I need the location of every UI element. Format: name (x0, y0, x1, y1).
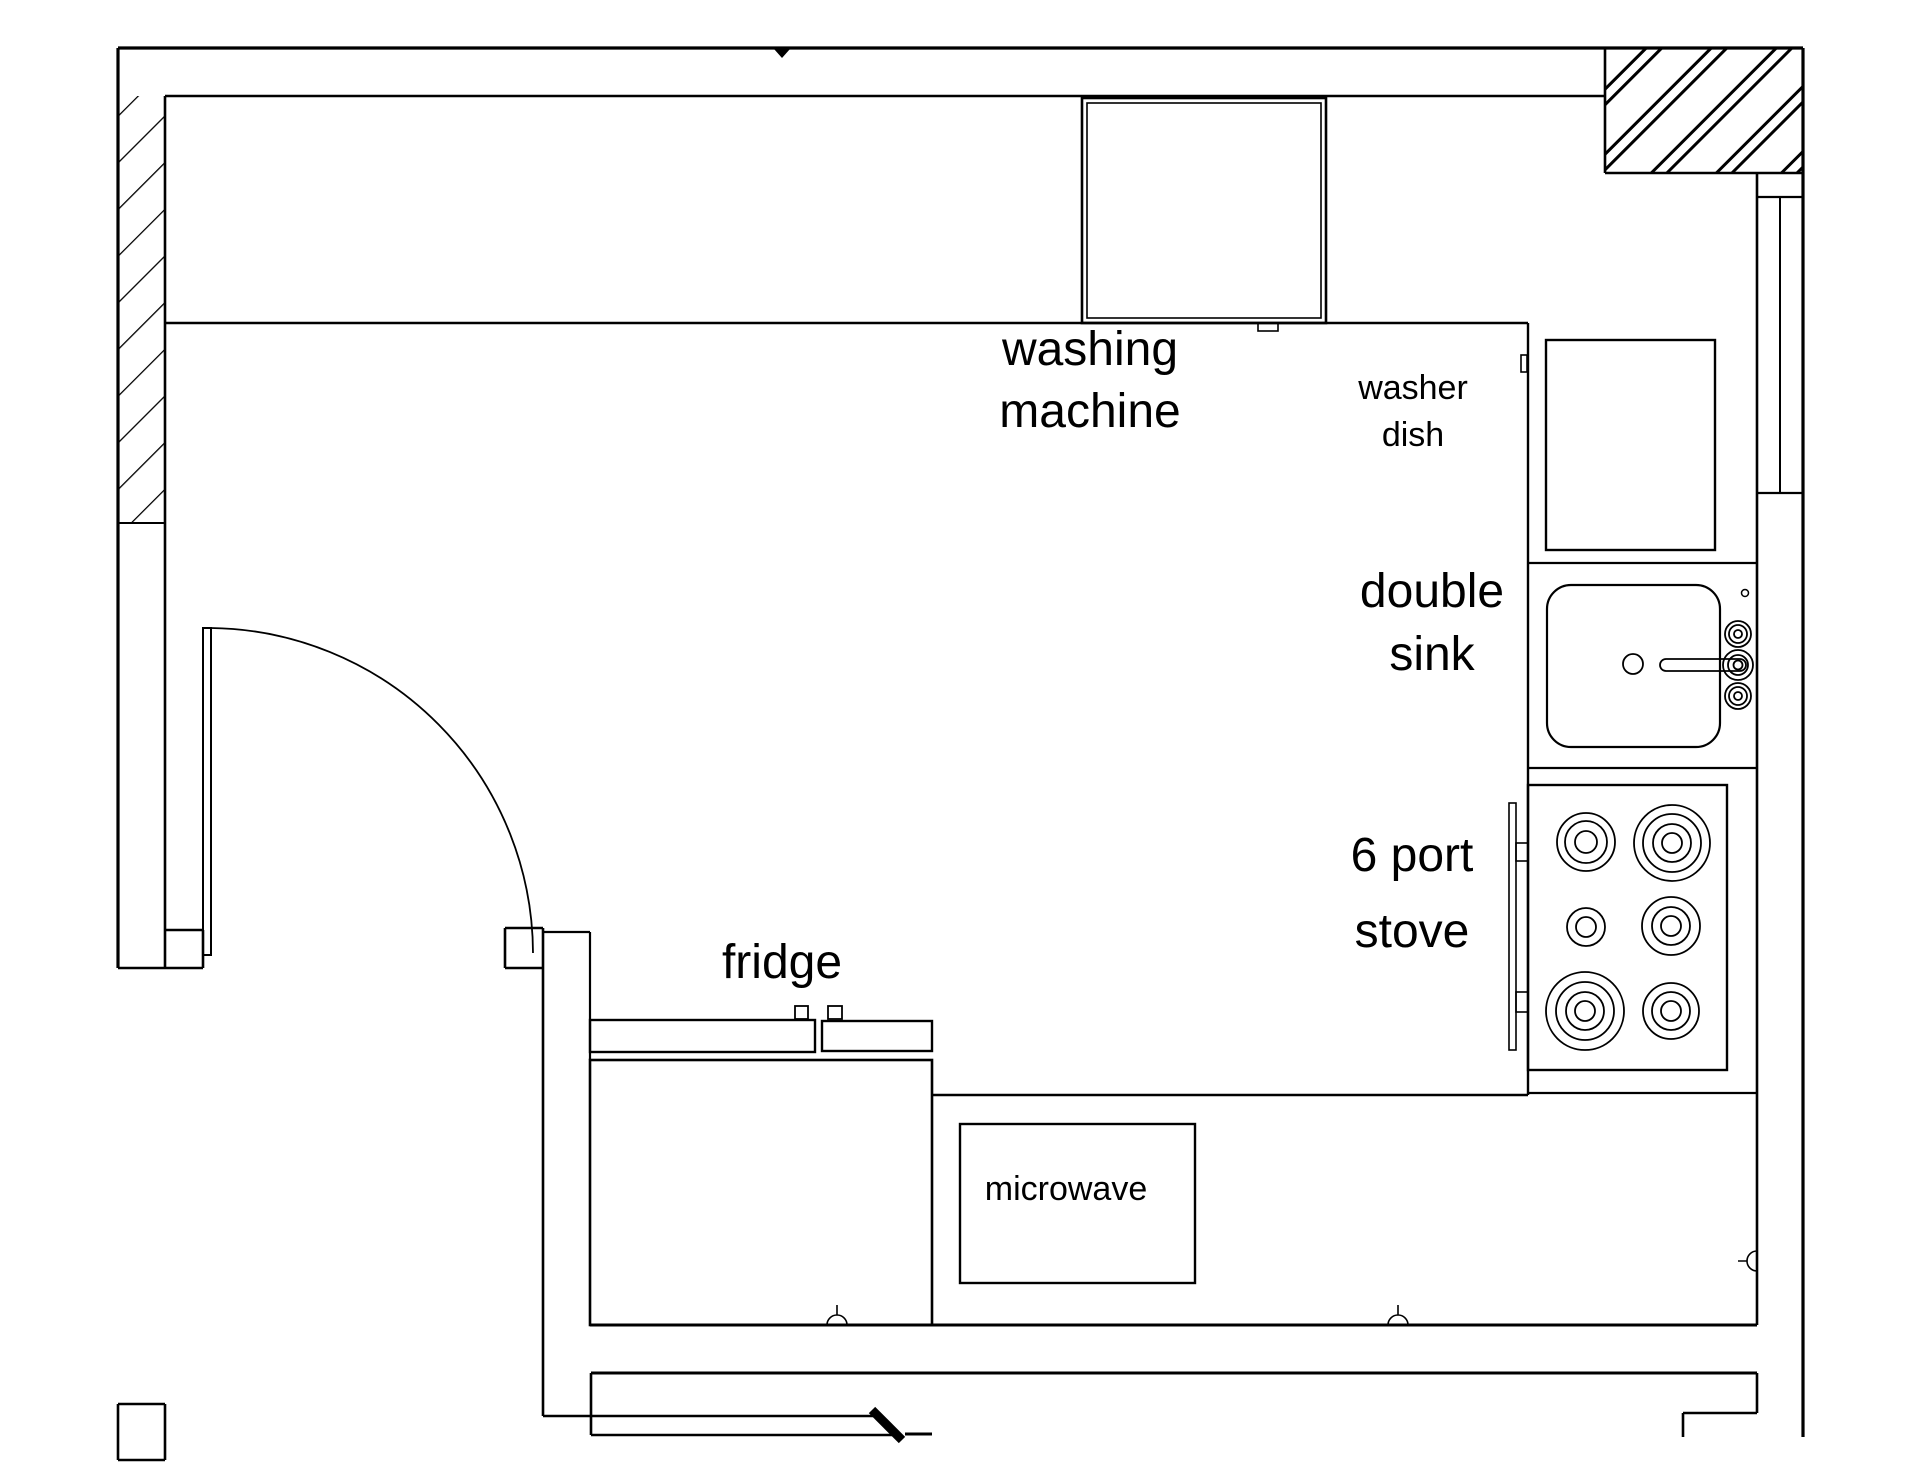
microwave-label: microwave (985, 1170, 1147, 1208)
fridge-outline (590, 1060, 932, 1325)
washing-machine-outline (1082, 98, 1326, 323)
fridge-hinge-left (795, 1006, 808, 1019)
double-sink-label-line1: double (1360, 565, 1504, 618)
datum-triangle-icon (774, 49, 790, 58)
double-sink (1547, 585, 1753, 747)
top-right-wall-hatch (1605, 48, 1803, 173)
plumbing-point-icon (827, 1305, 847, 1325)
left-wall-hatch (118, 96, 165, 523)
plumbing-point-icon (1738, 1251, 1757, 1271)
plan-symbols (774, 49, 1757, 1325)
fridge-door-right (822, 1021, 932, 1051)
door-jamb (118, 930, 203, 968)
sink-detail-dot (1742, 590, 1749, 597)
bottom-left-wall-stub (118, 1404, 165, 1460)
washing-machine-label-line1: washing (1001, 323, 1178, 376)
oven-handle-bar (1509, 803, 1516, 1050)
faucet-knob-bottom (1725, 683, 1751, 709)
burner-middle-right (1642, 897, 1700, 955)
counters (165, 323, 1757, 1095)
washing-machine-inner-outline (1087, 103, 1321, 318)
six-port-stove (1509, 785, 1727, 1070)
fridge-label: fridge (722, 936, 842, 989)
six-port-stove-label-line2: stove (1355, 905, 1470, 958)
burner-top-left (1557, 813, 1615, 871)
bottom-right-wall-notch (1683, 1373, 1757, 1437)
burner-top-right (1634, 805, 1710, 881)
fridge-hinge-right (828, 1006, 842, 1019)
sink-basin (1547, 585, 1720, 747)
counter-end-step (505, 928, 543, 1416)
burner-middle-left (1567, 908, 1605, 946)
oven-handle-bracket-top (1516, 843, 1528, 861)
oven-handle-bracket-bottom (1516, 992, 1528, 1012)
washer-dish-label-line2: dish (1382, 416, 1444, 454)
burner-bottom-left (1546, 972, 1624, 1050)
sink-drain (1623, 654, 1643, 674)
counter-tick-mark (1521, 355, 1527, 372)
double-sink-label-line2: sink (1389, 628, 1475, 681)
plumbing-point-icon (1388, 1305, 1408, 1325)
faucet-knob-top (1725, 621, 1751, 647)
door-leaf (203, 628, 211, 955)
dish-washer-outline (1546, 340, 1715, 550)
door-swing-arc (211, 628, 533, 953)
six-port-stove-label-line1: 6 port (1351, 829, 1474, 882)
fridge (590, 1006, 932, 1325)
labels: washing machine washer dish double sink … (722, 323, 1504, 1208)
fridge-alcove-step (543, 932, 590, 1060)
dish-washer-cabinet (1521, 340, 1715, 550)
washing-machine-label-line2: machine (999, 385, 1180, 438)
floor-plan-drawing: washing machine washer dish double sink … (0, 0, 1920, 1484)
threshold-line-lower (591, 1373, 897, 1435)
faucet-knob-middle (1723, 650, 1753, 680)
entry-door (203, 628, 533, 955)
burner-bottom-right (1643, 983, 1699, 1039)
washing-machine (1082, 98, 1326, 331)
washer-dish-label-line1: washer (1357, 369, 1468, 407)
fridge-door-left (590, 1020, 815, 1052)
floor-plan-canvas: washing machine washer dish double sink … (0, 0, 1920, 1484)
